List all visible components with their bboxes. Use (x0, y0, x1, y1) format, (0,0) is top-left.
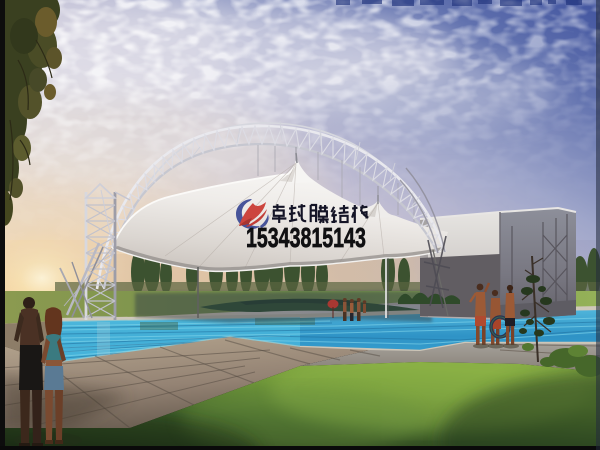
svg-text:15343815143: 15343815143 (246, 223, 366, 254)
